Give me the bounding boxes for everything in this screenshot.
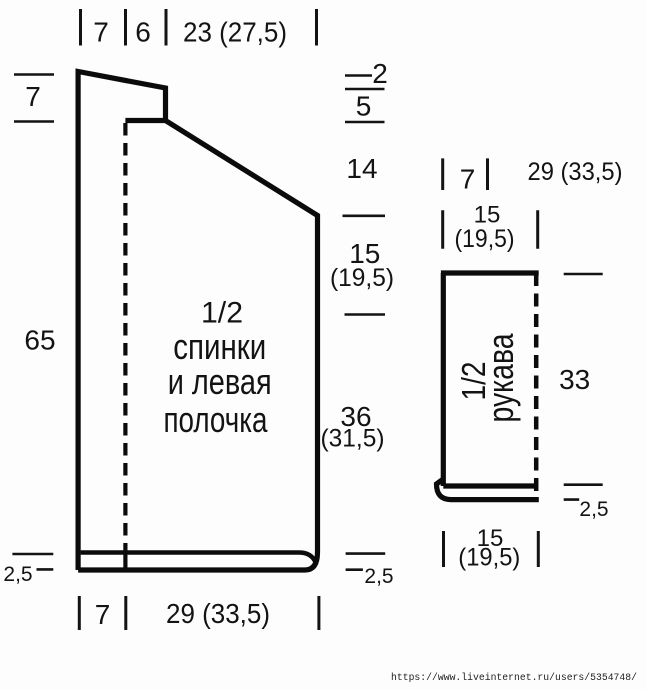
svg-text:7: 7 — [25, 81, 41, 112]
svg-text:33: 33 — [559, 364, 590, 395]
svg-text:рукава: рукава — [480, 333, 521, 423]
svg-text:2: 2 — [372, 58, 388, 89]
svg-text:7: 7 — [93, 17, 109, 48]
svg-text:(19,5): (19,5) — [458, 544, 520, 572]
svg-text:14: 14 — [346, 153, 377, 184]
svg-text:2,5: 2,5 — [579, 498, 608, 521]
svg-text:и левая: и левая — [168, 361, 272, 402]
svg-text:2,5: 2,5 — [364, 565, 393, 588]
svg-text:(19,5): (19,5) — [330, 264, 394, 292]
svg-text:(19,5): (19,5) — [455, 225, 515, 253]
svg-text:65: 65 — [24, 325, 55, 356]
svg-text:5: 5 — [356, 91, 372, 122]
svg-text:7: 7 — [460, 164, 476, 195]
svg-text:полочка: полочка — [164, 399, 269, 440]
svg-text:29 (33,5): 29 (33,5) — [166, 598, 270, 629]
svg-text:2,5: 2,5 — [3, 563, 32, 586]
svg-text:1/2: 1/2 — [201, 297, 243, 330]
svg-text:(31,5): (31,5) — [321, 425, 385, 453]
svg-text:23 (27,5): 23 (27,5) — [183, 17, 287, 48]
svg-text:7: 7 — [95, 599, 111, 630]
svg-text:https://www.liveinternet.ru/us: https://www.liveinternet.ru/users/535474… — [391, 672, 637, 684]
svg-text:29 (33,5): 29 (33,5) — [528, 158, 623, 186]
svg-text:6: 6 — [135, 17, 151, 48]
